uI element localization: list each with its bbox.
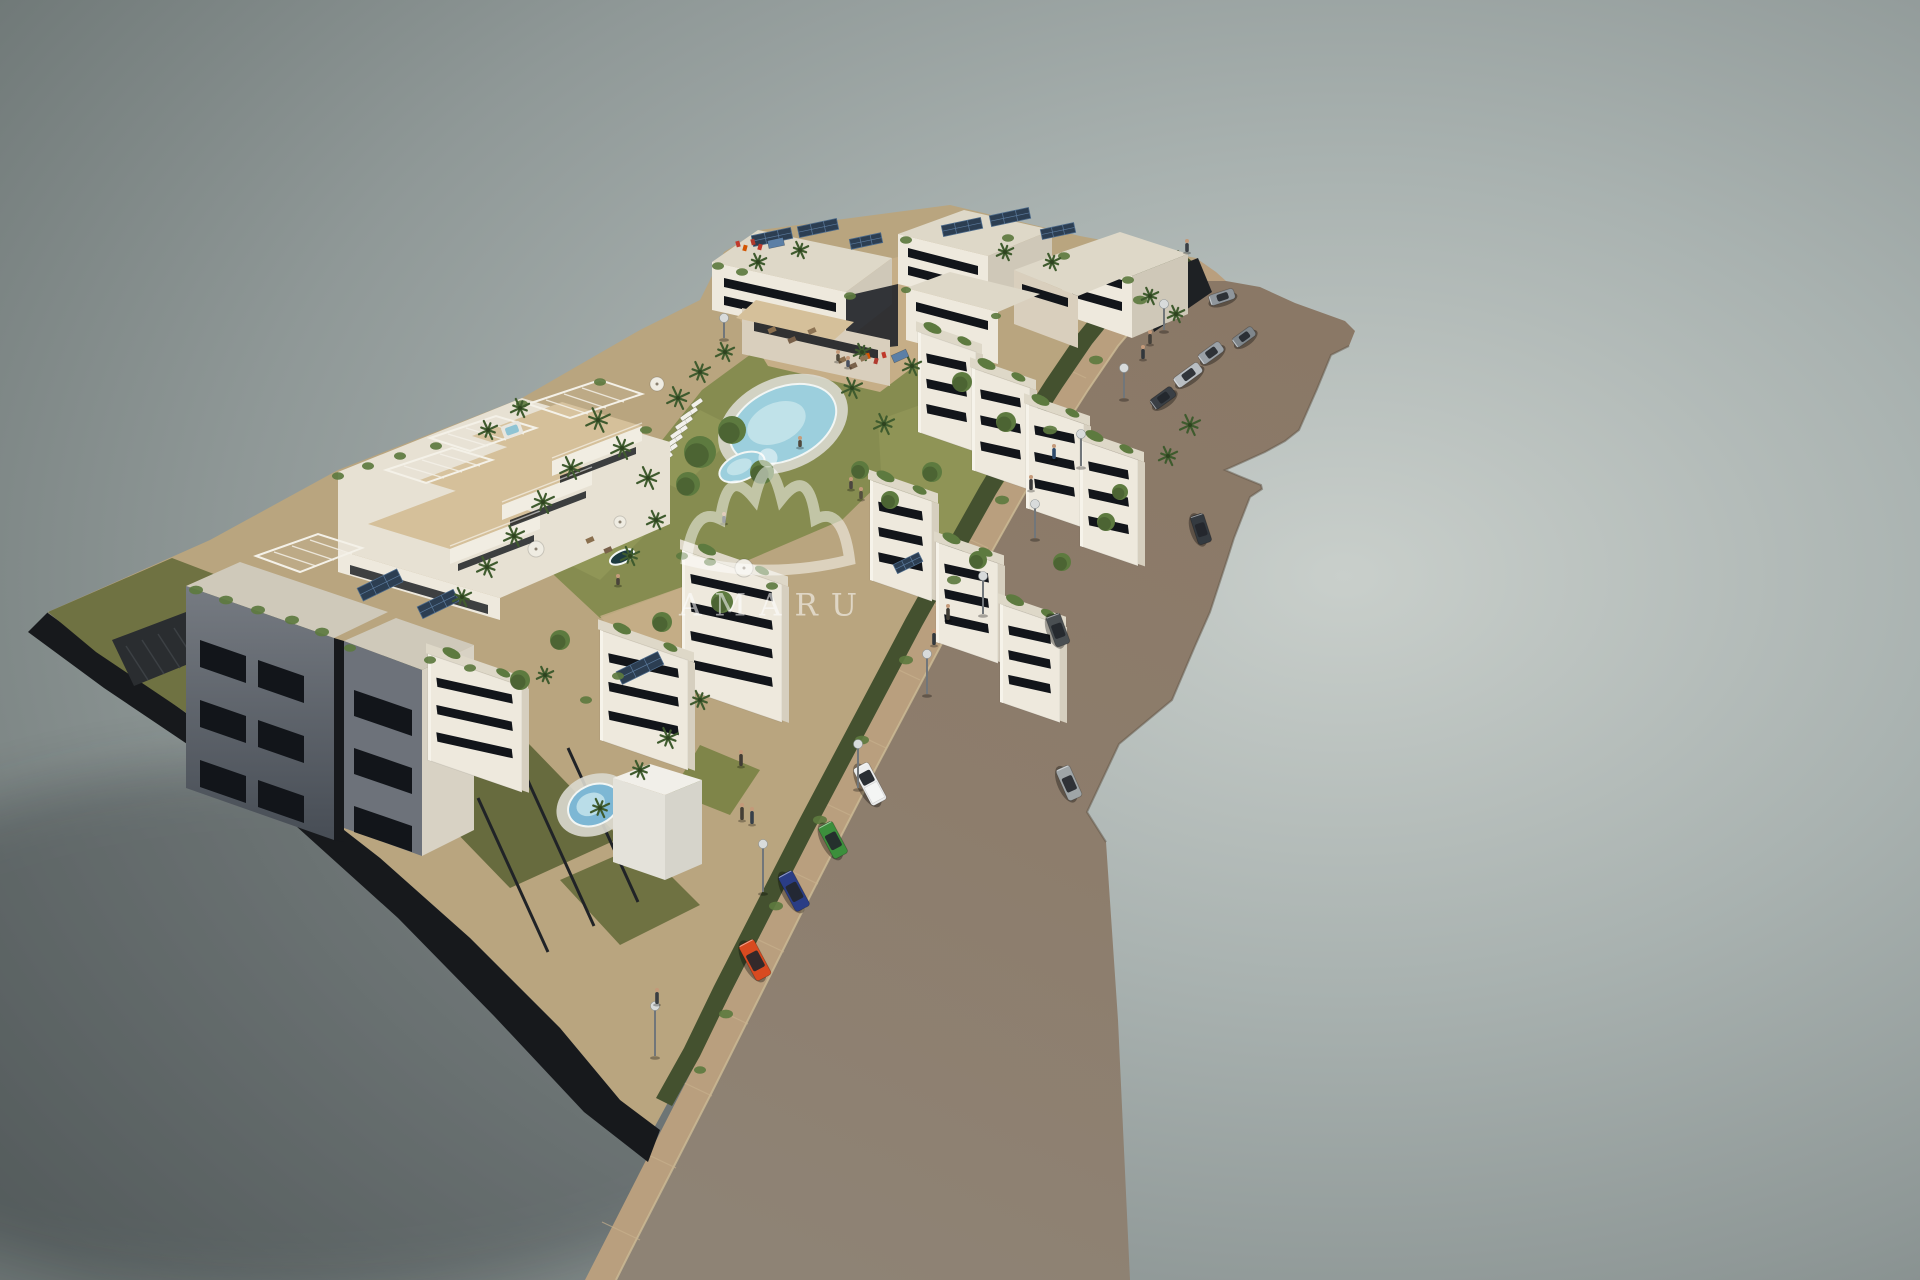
block-facade	[1080, 440, 1138, 566]
palm-crown	[541, 500, 545, 504]
shrub	[1002, 234, 1014, 241]
shrub	[430, 442, 442, 449]
palm-crown	[882, 422, 886, 426]
block-edge-highlight	[600, 630, 603, 741]
shrub	[991, 313, 1001, 319]
lamp-shadow	[650, 1056, 660, 1060]
shrub	[719, 1010, 733, 1019]
utility-box-side	[665, 780, 702, 880]
block-edge-highlight	[870, 480, 873, 581]
person-body	[1052, 448, 1056, 459]
palm-crown	[698, 370, 702, 374]
block-edge-highlight	[936, 542, 939, 643]
lamp-head	[1077, 430, 1086, 439]
palm-crown	[569, 466, 573, 470]
person-body	[740, 807, 744, 820]
shrub	[594, 378, 606, 385]
person-body	[750, 811, 754, 824]
person-body	[846, 360, 850, 367]
tree	[550, 630, 570, 650]
lamp-shadow	[1076, 466, 1086, 470]
palm-crown	[756, 260, 760, 264]
tree	[881, 491, 899, 509]
shrub	[344, 644, 356, 651]
shrub	[464, 664, 476, 671]
lamp-shadow	[922, 694, 932, 698]
lamp-shadow	[1119, 398, 1129, 402]
person-head	[836, 350, 840, 354]
palm-crown	[512, 534, 516, 538]
tree	[922, 462, 942, 482]
person-body	[1141, 349, 1145, 359]
shrub	[947, 576, 961, 585]
shrub	[899, 656, 913, 665]
block-side	[1138, 460, 1145, 566]
canopy-shade	[969, 555, 983, 569]
lamp-head	[979, 572, 988, 581]
shrub	[315, 628, 329, 637]
parasol-pole	[535, 548, 538, 551]
person-head	[846, 356, 850, 360]
person-head	[616, 574, 620, 578]
person-head	[946, 604, 950, 608]
canopy-shade	[1097, 517, 1111, 531]
palm-crown	[1166, 454, 1170, 458]
stairwell-shadow	[334, 638, 344, 842]
shrub	[424, 656, 436, 663]
person-head	[750, 807, 754, 811]
person-body	[946, 608, 950, 620]
tree	[969, 551, 987, 569]
palm-crown	[596, 418, 600, 422]
parasol	[614, 516, 626, 528]
shrub	[900, 236, 912, 243]
shrub	[285, 616, 299, 625]
tree	[952, 372, 972, 392]
crown-icon	[666, 431, 870, 581]
canopy-shade	[551, 635, 566, 650]
palm-crown	[543, 673, 547, 677]
shrub	[694, 1066, 706, 1073]
block-edge-highlight	[972, 368, 975, 471]
shrub	[580, 696, 592, 703]
shrub	[995, 496, 1009, 505]
tree	[1112, 484, 1128, 500]
palm-crown	[628, 554, 632, 558]
shrub	[362, 462, 374, 469]
palm-crown	[1174, 312, 1178, 316]
person-body	[932, 633, 936, 645]
canopy-shade	[511, 675, 526, 690]
palm-crown	[1050, 260, 1054, 264]
person-head	[932, 629, 936, 633]
palm-crown	[620, 446, 624, 450]
shrub	[1089, 356, 1103, 365]
person-body	[739, 754, 743, 766]
shrub	[640, 426, 652, 433]
lamp-head	[1120, 364, 1129, 373]
parasol-pole	[656, 383, 659, 386]
shrub	[1133, 296, 1147, 305]
person-head	[1185, 239, 1189, 243]
architectural-render	[0, 0, 1920, 1280]
shrub	[612, 672, 624, 679]
person-body	[1185, 243, 1189, 252]
palm-crown	[638, 768, 642, 772]
shrub	[844, 292, 856, 299]
shrub	[251, 606, 265, 615]
lamp-shadow	[1159, 330, 1169, 334]
person-head	[739, 750, 743, 754]
person-head	[655, 988, 659, 992]
palm-crown	[1003, 250, 1007, 254]
person-head	[1029, 475, 1033, 479]
canopy-shade	[923, 467, 938, 482]
shrub	[769, 902, 783, 911]
tree	[510, 670, 530, 690]
block-edge-highlight	[1000, 604, 1003, 703]
palm-crown	[666, 736, 670, 740]
render-canvas: AMARU	[0, 0, 1920, 1280]
parasol	[650, 377, 664, 391]
lamp-shadow	[978, 614, 988, 618]
block-edge-highlight	[1026, 404, 1029, 509]
utility-box	[613, 764, 702, 880]
canopy-shade	[953, 377, 968, 392]
person-body	[1148, 334, 1152, 344]
shrub	[1043, 426, 1057, 435]
person-body	[655, 992, 659, 1004]
person-head	[1148, 330, 1152, 334]
palm-crown	[850, 386, 854, 390]
lamp-shadow	[719, 338, 729, 342]
palm-crown	[860, 350, 864, 354]
person-head	[1141, 345, 1145, 349]
block-side	[688, 660, 695, 770]
shrub	[1122, 276, 1134, 283]
shrub	[736, 268, 748, 275]
lamp-head	[854, 740, 863, 749]
crown-outline	[686, 472, 849, 571]
lamp-head	[759, 840, 768, 849]
palm-crown	[1148, 294, 1152, 298]
block-side	[522, 686, 529, 792]
shrub	[219, 596, 233, 605]
person-body	[616, 578, 620, 585]
shrub	[332, 472, 344, 479]
palm-crown	[910, 364, 914, 368]
palm-crown	[723, 350, 727, 354]
parasol	[528, 541, 544, 557]
palm-crown	[646, 476, 650, 480]
palm-crown	[485, 565, 489, 569]
block-edge-highlight	[918, 332, 921, 433]
person-head	[1052, 444, 1056, 448]
lamp-head	[923, 650, 932, 659]
palm-crown	[518, 406, 522, 410]
lamp-head	[720, 314, 729, 323]
canopy-shade	[1053, 557, 1067, 571]
canopy-shade	[1112, 488, 1124, 500]
canopy-shade	[881, 495, 895, 509]
lamp-head	[1160, 300, 1169, 309]
person-body	[836, 354, 840, 361]
palm-crown	[654, 518, 658, 522]
tree	[996, 412, 1016, 432]
palm-crown	[798, 248, 802, 252]
shrub	[901, 287, 911, 293]
tree	[1053, 553, 1071, 571]
palm-crown	[698, 698, 702, 702]
palm-crown	[676, 396, 680, 400]
canopy-shade	[997, 417, 1012, 432]
shrub	[712, 262, 724, 269]
person-head	[740, 803, 744, 807]
shrub	[394, 452, 406, 459]
lamp-shadow	[1030, 538, 1040, 542]
parasol-pole	[619, 521, 622, 524]
person-body	[1029, 479, 1033, 490]
shrub	[189, 586, 203, 595]
lamp-shadow	[758, 892, 768, 896]
block-edge-highlight	[428, 654, 431, 761]
palm-crown	[1188, 423, 1192, 427]
palm-crown	[460, 595, 464, 599]
lamp-head	[1031, 500, 1040, 509]
lamp-shadow	[853, 788, 863, 792]
watermark-text: AMARU	[666, 588, 870, 624]
palm-crown	[598, 806, 602, 810]
crown-jewel	[758, 449, 777, 468]
watermark: AMARU	[666, 431, 870, 624]
tree	[1097, 513, 1115, 531]
palm-crown	[486, 428, 490, 432]
